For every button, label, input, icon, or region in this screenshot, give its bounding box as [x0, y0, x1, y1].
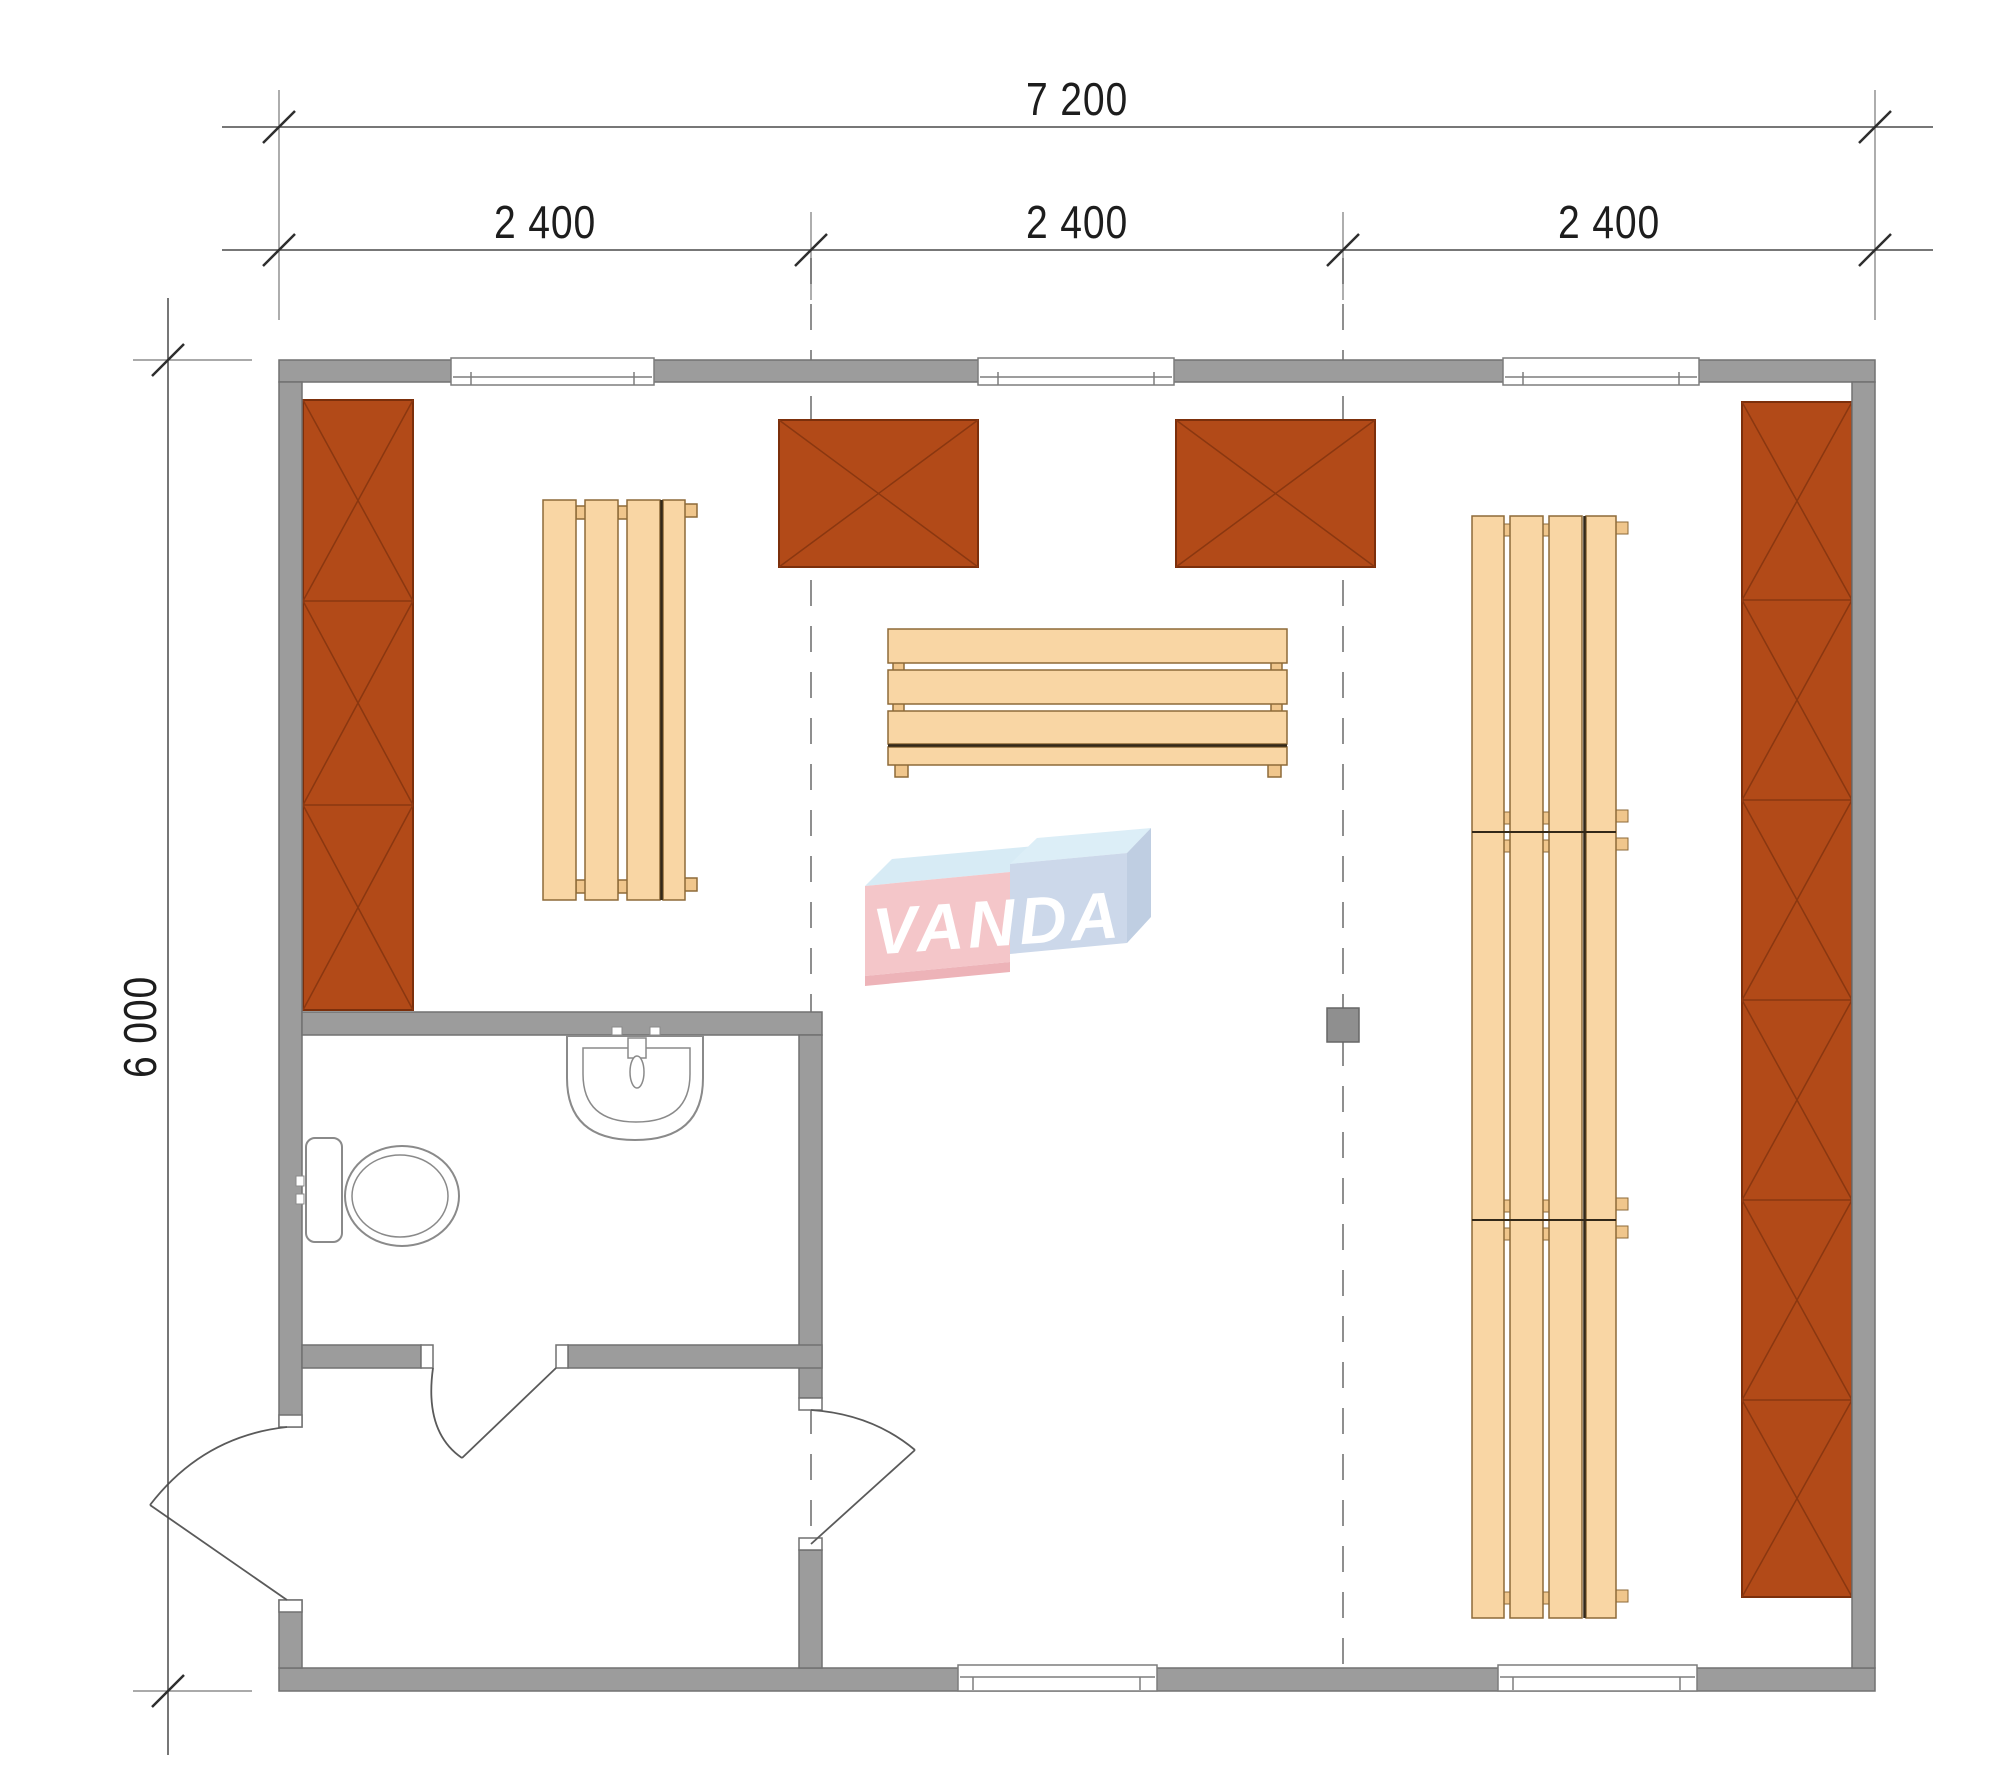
wardrobe-left-icon	[303, 400, 413, 1010]
wall-box-2-icon	[1176, 420, 1375, 567]
furniture	[303, 400, 1852, 1618]
walls	[279, 360, 1875, 1691]
wall-box-1-icon	[779, 420, 978, 567]
wall-bathroom-right	[799, 1035, 822, 1398]
wardrobe-right-icon	[1742, 402, 1852, 1597]
dimension-label-bay-3: 2 400	[1516, 195, 1703, 249]
wall-bathroom-top	[302, 1012, 822, 1035]
floor-plan-drawing: VANDA	[0, 0, 2000, 1786]
dimension-label-total-width: 7 200	[984, 72, 1171, 126]
sink-icon	[567, 1027, 703, 1140]
bench-right-icon	[1472, 516, 1628, 1618]
wall-bathroom-bottom-left	[302, 1345, 421, 1368]
wall-right	[1852, 382, 1875, 1668]
dimension-label-bay-2: 2 400	[984, 195, 1171, 249]
watermark-logo: VANDA	[865, 828, 1151, 986]
heater-icon	[1327, 1008, 1359, 1042]
door-vestibule	[811, 1410, 915, 1544]
window-top-3	[1503, 358, 1699, 385]
toilet-icon	[296, 1138, 459, 1246]
bench-middle-icon	[888, 629, 1287, 777]
window-bottom-1	[958, 1665, 1157, 1691]
door-bathroom	[431, 1368, 556, 1458]
window-top-2	[978, 358, 1174, 385]
floor-plan-canvas: VANDA 7 200 2 400 2 400 2 400 6 000	[0, 0, 2000, 1786]
window-bottom-2	[1498, 1665, 1697, 1691]
bench-left-icon	[543, 500, 697, 900]
dimension-label-bay-1: 2 400	[452, 195, 639, 249]
door-entrance	[150, 1427, 287, 1600]
wall-bathroom-bottom-right	[568, 1345, 822, 1368]
wall-left-upper	[279, 382, 302, 1427]
bathroom-fixtures	[296, 1027, 703, 1246]
dimension-label-height: 6 000	[113, 934, 167, 1121]
window-top-1	[451, 358, 654, 385]
wall-vestibule-right	[799, 1550, 822, 1668]
